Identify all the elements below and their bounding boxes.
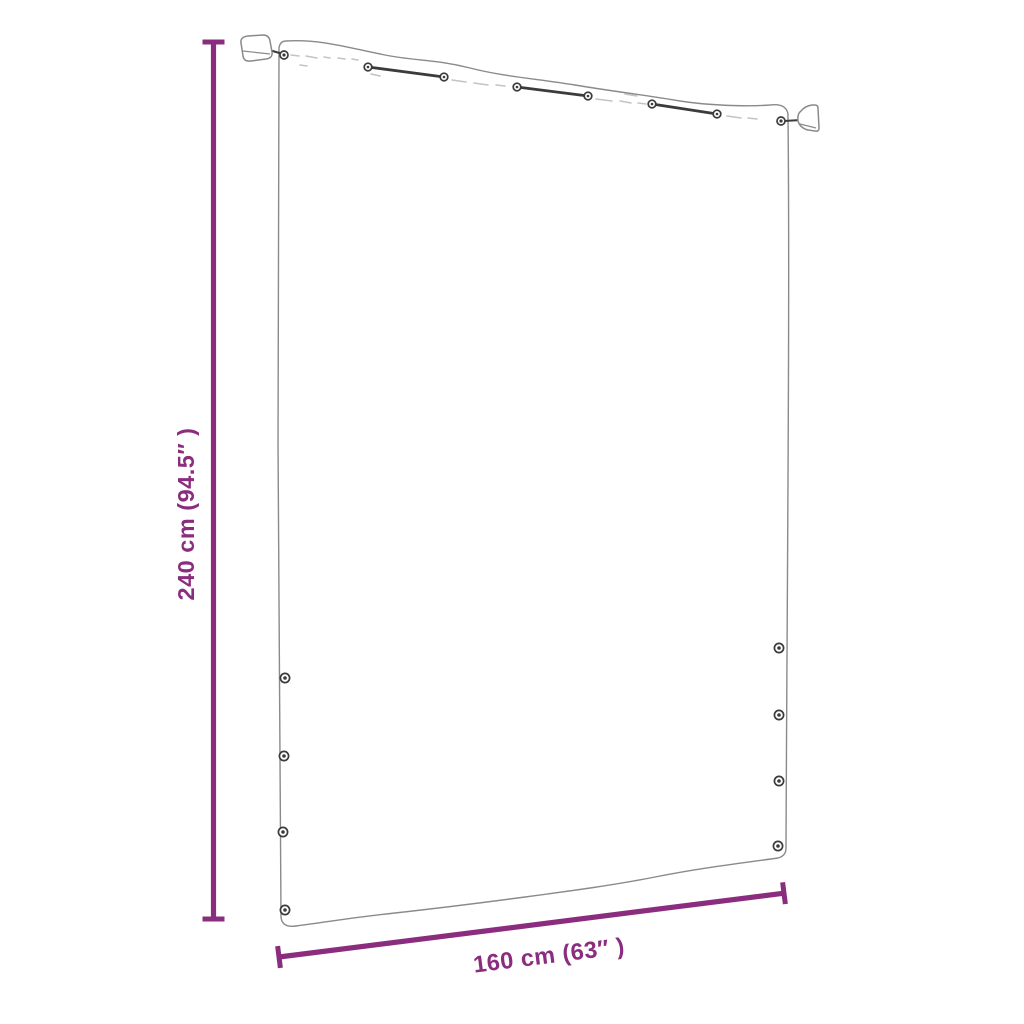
right-bracket-icon bbox=[798, 105, 819, 131]
grommet-right-side bbox=[774, 776, 783, 785]
grommet-hole bbox=[283, 908, 287, 912]
grommet-hole bbox=[443, 76, 446, 79]
grommet-top-left bbox=[280, 51, 288, 59]
diagram-canvas: 240 cm (94.5″ ) 160 cm (63″ ) bbox=[0, 0, 1024, 1024]
grommet-hole bbox=[367, 66, 370, 69]
grommet-hole bbox=[651, 103, 654, 106]
grommet-right-side bbox=[774, 643, 783, 652]
grommet-hole bbox=[516, 86, 519, 89]
grommet-left-side bbox=[279, 751, 288, 760]
width-dimension-right-cap bbox=[783, 882, 786, 904]
grommet-cord-end bbox=[648, 100, 656, 108]
height-dimension: 240 cm (94.5″ ) bbox=[173, 42, 225, 919]
grommet-hole bbox=[777, 646, 781, 650]
grommet-hole bbox=[281, 830, 285, 834]
grommet-hole bbox=[776, 844, 780, 848]
grommet-hole bbox=[777, 713, 781, 717]
grommet-hole bbox=[587, 95, 590, 98]
right-wall-bracket bbox=[784, 105, 819, 131]
curtain-panel-outline bbox=[278, 41, 789, 927]
grommet-left-side bbox=[280, 673, 289, 682]
left-bracket-icon bbox=[241, 35, 272, 61]
grommet-hole bbox=[282, 754, 286, 758]
height-dimension-label: 240 cm (94.5″ ) bbox=[173, 428, 199, 601]
grommet-hole bbox=[283, 676, 287, 680]
width-dimension-left-cap bbox=[278, 946, 281, 968]
grommet-hole bbox=[779, 119, 782, 122]
grommet-left-side bbox=[280, 905, 289, 914]
grommet-left-side bbox=[278, 827, 287, 836]
grommet-cord-end bbox=[440, 73, 448, 81]
left-wall-bracket bbox=[241, 35, 283, 61]
grommet-cord-end bbox=[713, 110, 721, 118]
grommet-hole bbox=[777, 779, 781, 783]
grommet-right-side bbox=[774, 710, 783, 719]
grommet-hole bbox=[716, 113, 719, 116]
grommet-cord-end bbox=[513, 83, 521, 91]
grommet-hole bbox=[282, 53, 285, 56]
grommet-cord-end bbox=[364, 63, 372, 71]
grommet-top-right bbox=[777, 117, 785, 125]
grommet-cord-end bbox=[584, 92, 592, 100]
product-dimension-diagram: 240 cm (94.5″ ) 160 cm (63″ ) bbox=[0, 0, 1024, 1024]
grommet-right-side bbox=[773, 841, 782, 850]
width-dimension-label: 160 cm (63″ ) bbox=[472, 933, 626, 978]
